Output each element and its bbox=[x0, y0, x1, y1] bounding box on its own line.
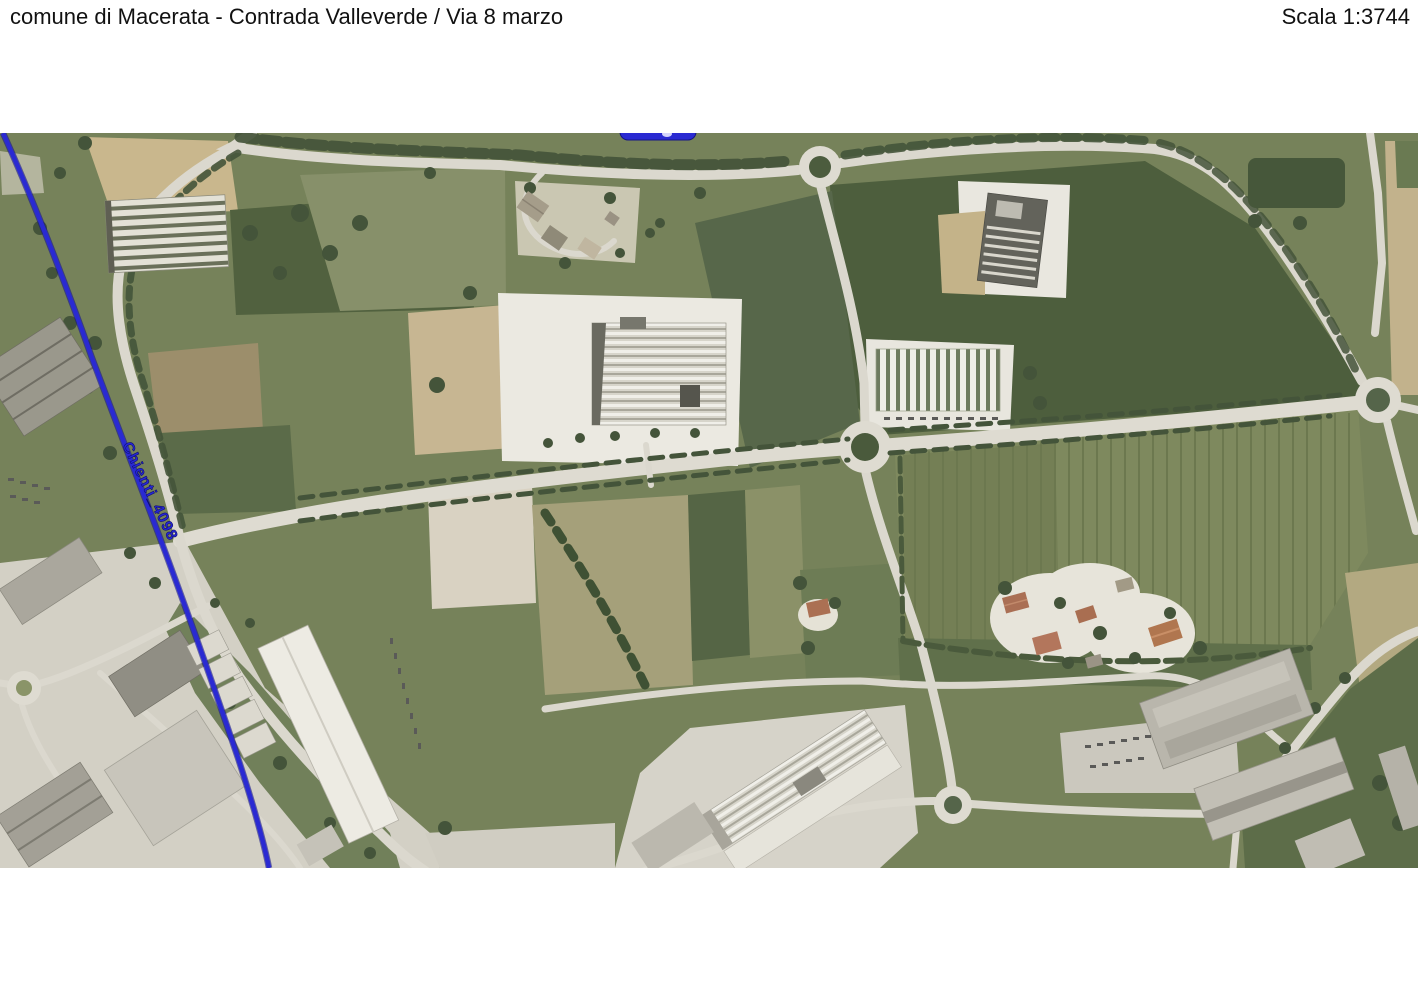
roundabout-left bbox=[7, 671, 41, 705]
roundabout-top bbox=[799, 146, 841, 188]
building-central-shed bbox=[592, 317, 726, 425]
roundabout-right bbox=[1355, 377, 1401, 423]
aerial-map: Chienti_4098 bbox=[0, 133, 1418, 868]
document-title: comune di Macerata - Contrada Valleverde… bbox=[10, 4, 563, 30]
building-striped-center bbox=[876, 349, 1000, 411]
scale-label: Scala 1:3744 bbox=[1282, 4, 1410, 30]
roundabout-center bbox=[839, 421, 891, 473]
building-dark-ne bbox=[977, 193, 1047, 288]
building-sheds-topleft bbox=[105, 195, 229, 273]
roundabout-bottom bbox=[934, 786, 972, 824]
route-balloon-top bbox=[620, 133, 696, 140]
